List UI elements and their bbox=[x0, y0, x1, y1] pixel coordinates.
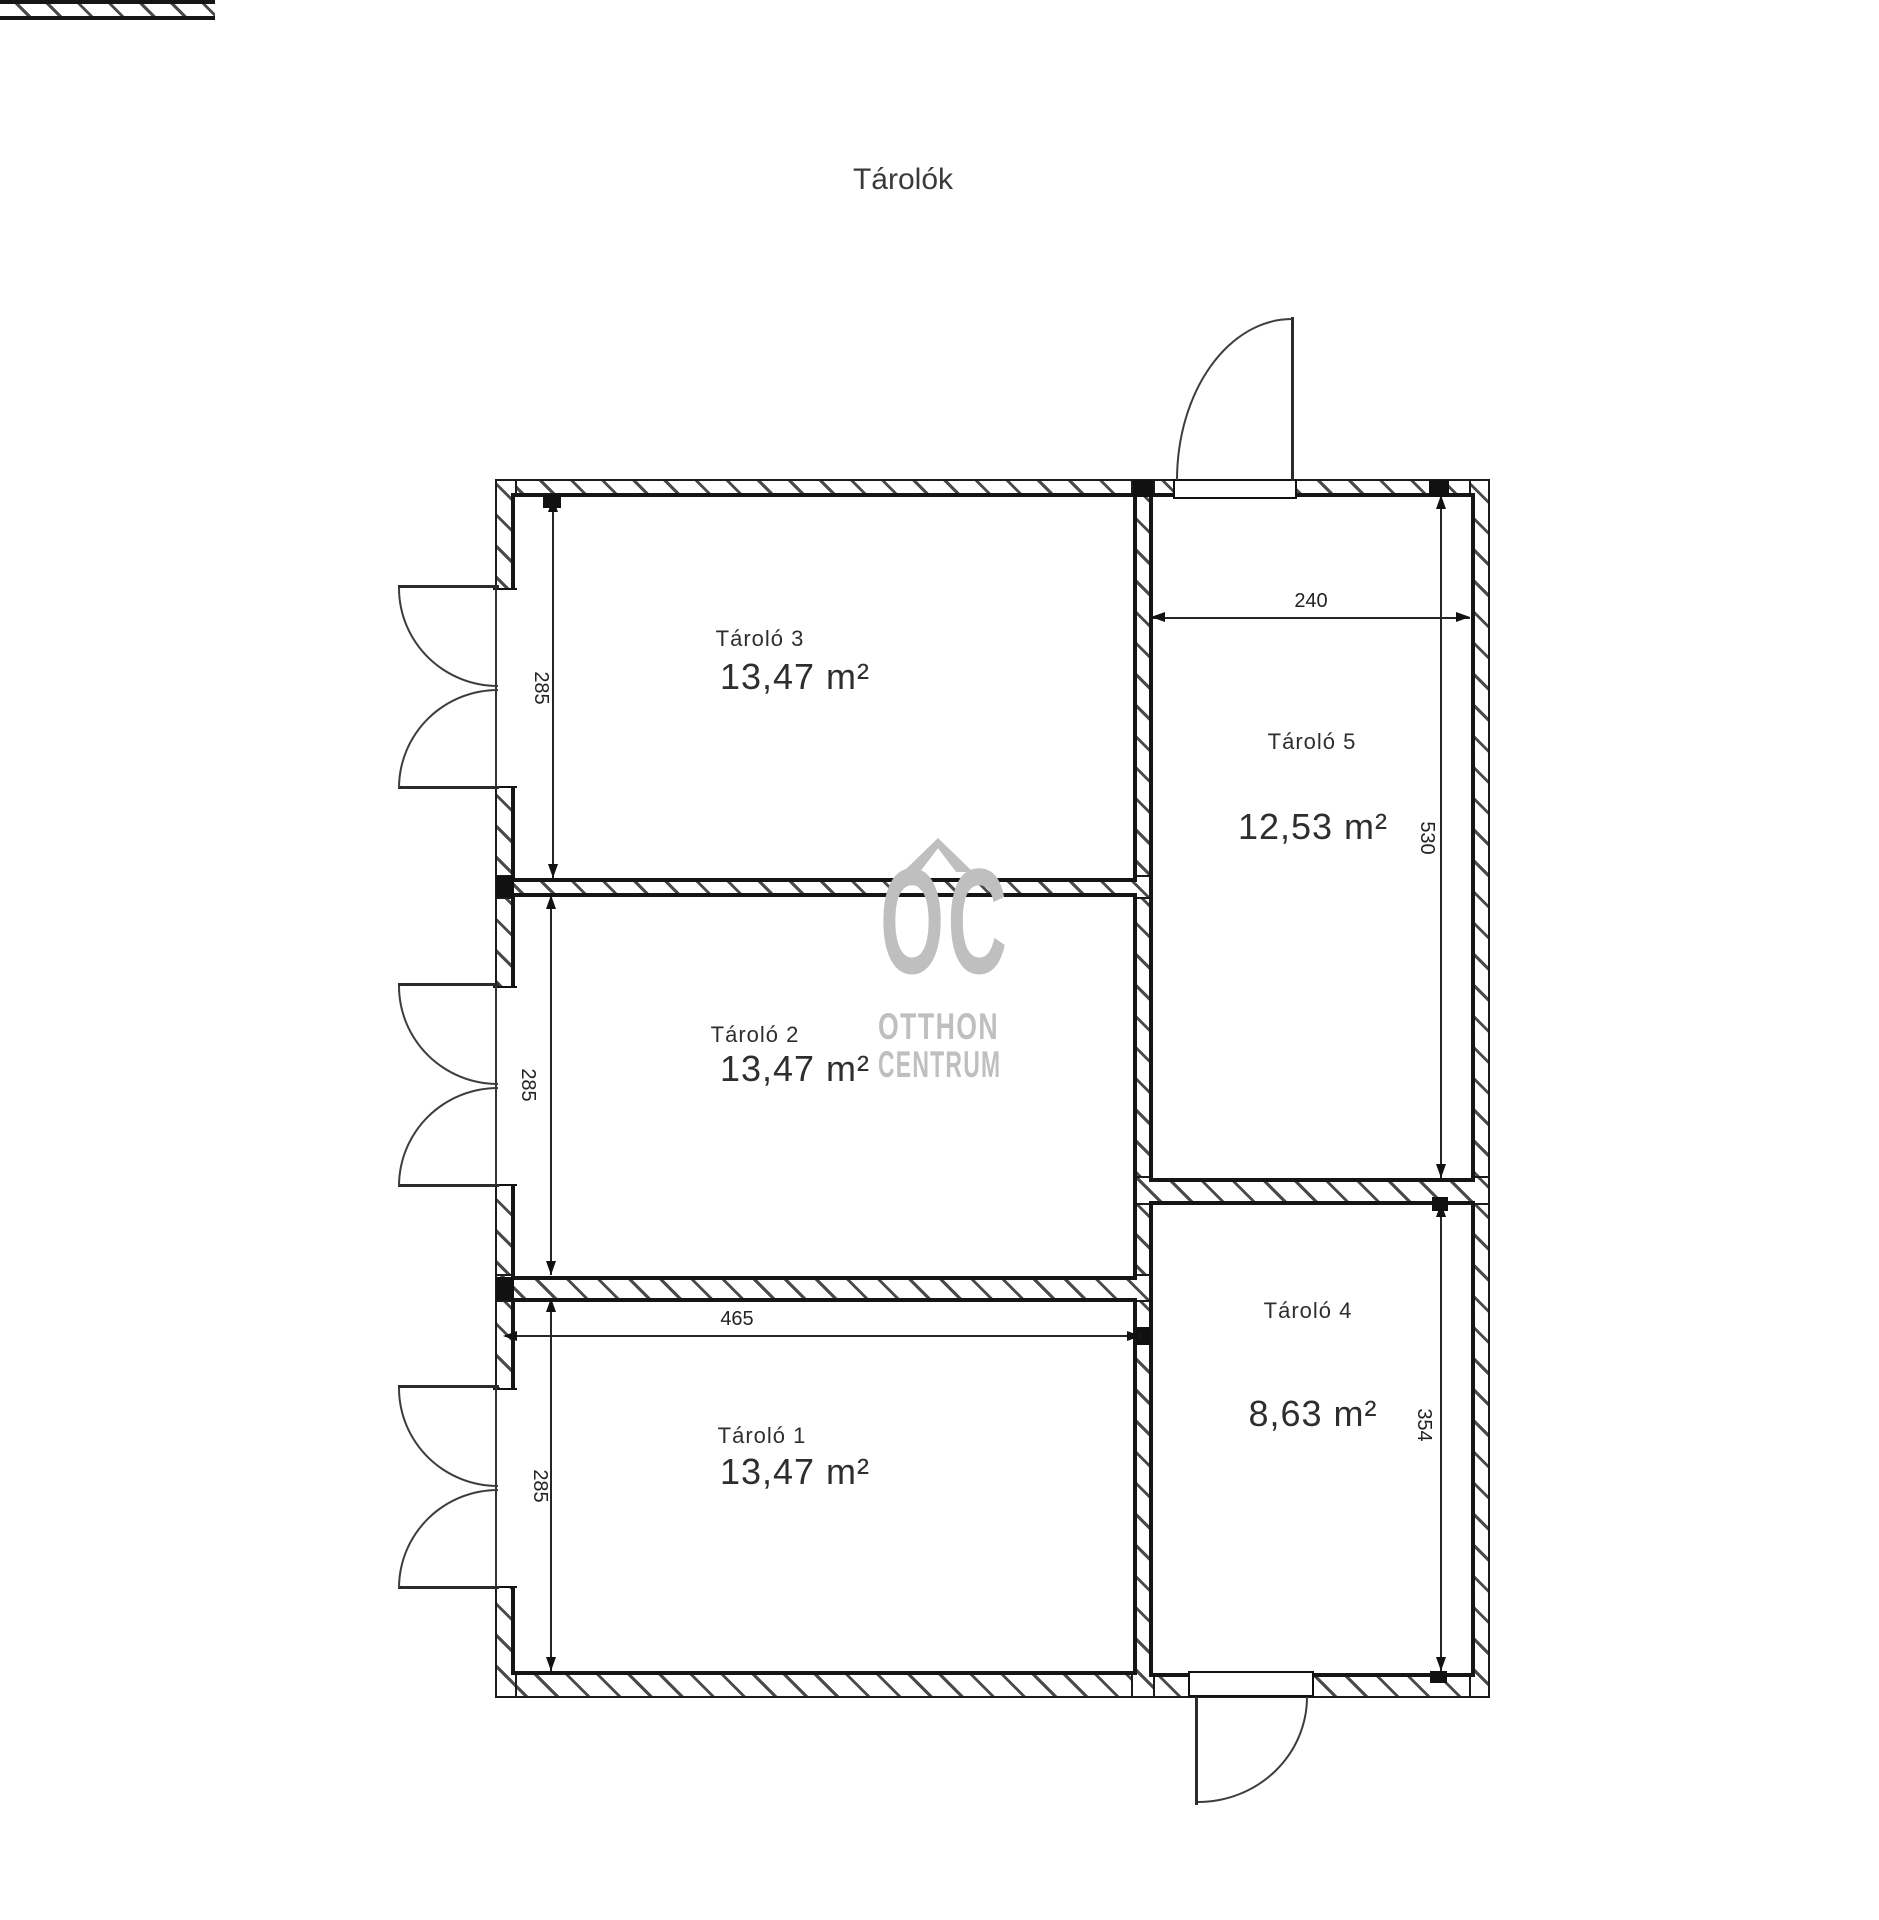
arrow-icon bbox=[1436, 1657, 1446, 1671]
dim-label-t5-height: 530 bbox=[1416, 803, 1438, 873]
door-swing-arc bbox=[398, 1388, 498, 1487]
room-t2-name: Tároló 2 bbox=[645, 1022, 865, 1048]
dim-line-t5-width bbox=[1153, 617, 1470, 619]
dim-label-t1-height: 285 bbox=[529, 1451, 551, 1521]
door-swing-arc bbox=[398, 689, 498, 788]
dim-label-t3-height: 285 bbox=[530, 653, 552, 723]
arrow-icon bbox=[548, 864, 558, 878]
arrow-icon bbox=[503, 1331, 517, 1341]
arrow-icon bbox=[548, 498, 558, 512]
plan-title: Tárolók bbox=[703, 163, 1103, 197]
dim-line-t1-width bbox=[505, 1335, 1141, 1337]
door-swing-arc bbox=[1198, 1697, 1308, 1803]
dim-label-t5-width: 240 bbox=[1276, 590, 1346, 612]
dim-label-t2-height: 285 bbox=[517, 1050, 539, 1120]
dim-line-t4-height bbox=[1440, 1205, 1442, 1671]
arrow-icon bbox=[546, 1261, 556, 1275]
wall-pillar bbox=[1133, 480, 1153, 497]
door-swing-arc bbox=[398, 1489, 498, 1588]
wall-pillar bbox=[1430, 1671, 1447, 1683]
arrow-icon bbox=[546, 895, 556, 909]
room-t3-name: Tároló 3 bbox=[650, 626, 870, 652]
arrow-icon bbox=[546, 1657, 556, 1671]
watermark-line1: OTTHON bbox=[878, 1008, 999, 1045]
arrow-icon bbox=[1436, 1203, 1446, 1217]
arrow-icon bbox=[1456, 612, 1470, 622]
room-t1-area: 13,47 m² bbox=[665, 1451, 925, 1493]
door-opening-t4 bbox=[1188, 1671, 1314, 1697]
dim-label-t4-height: 354 bbox=[1413, 1390, 1435, 1460]
room-t2-area: 13,47 m² bbox=[665, 1048, 925, 1090]
door-swing-arc bbox=[398, 1087, 498, 1186]
arrow-icon bbox=[1151, 612, 1165, 622]
arrow-icon bbox=[1436, 495, 1446, 509]
room-t4-name: Tároló 4 bbox=[1198, 1298, 1418, 1324]
door-swing-arc bbox=[1176, 318, 1292, 480]
arrow-icon bbox=[1436, 1164, 1446, 1178]
arrow-icon bbox=[546, 1298, 556, 1312]
door-opening-t5 bbox=[1173, 479, 1297, 499]
wall-pillar bbox=[496, 1277, 514, 1300]
wall-overlay-segment bbox=[0, 0, 215, 20]
room-t5-area: 12,53 m² bbox=[1183, 806, 1443, 848]
dim-label-t1-width: 465 bbox=[702, 1308, 772, 1330]
arrow-icon bbox=[1127, 1331, 1141, 1341]
watermark-logo: OC bbox=[880, 846, 1010, 996]
floor-plan: Tárolók OC OTTHON CENTRUM Tároló 3 13,47… bbox=[0, 0, 1879, 1920]
door-swing-arc bbox=[398, 986, 498, 1085]
dim-line-t2-height bbox=[550, 897, 552, 1275]
door-swing-arc bbox=[398, 588, 498, 687]
dim-line-t3-height bbox=[552, 500, 554, 878]
room-t5-name: Tároló 5 bbox=[1202, 729, 1422, 755]
wall-pillar bbox=[496, 876, 514, 897]
room-t3-area: 13,47 m² bbox=[665, 656, 925, 698]
room-t1-name: Tároló 1 bbox=[652, 1423, 872, 1449]
room-t4-area: 8,63 m² bbox=[1183, 1393, 1443, 1435]
